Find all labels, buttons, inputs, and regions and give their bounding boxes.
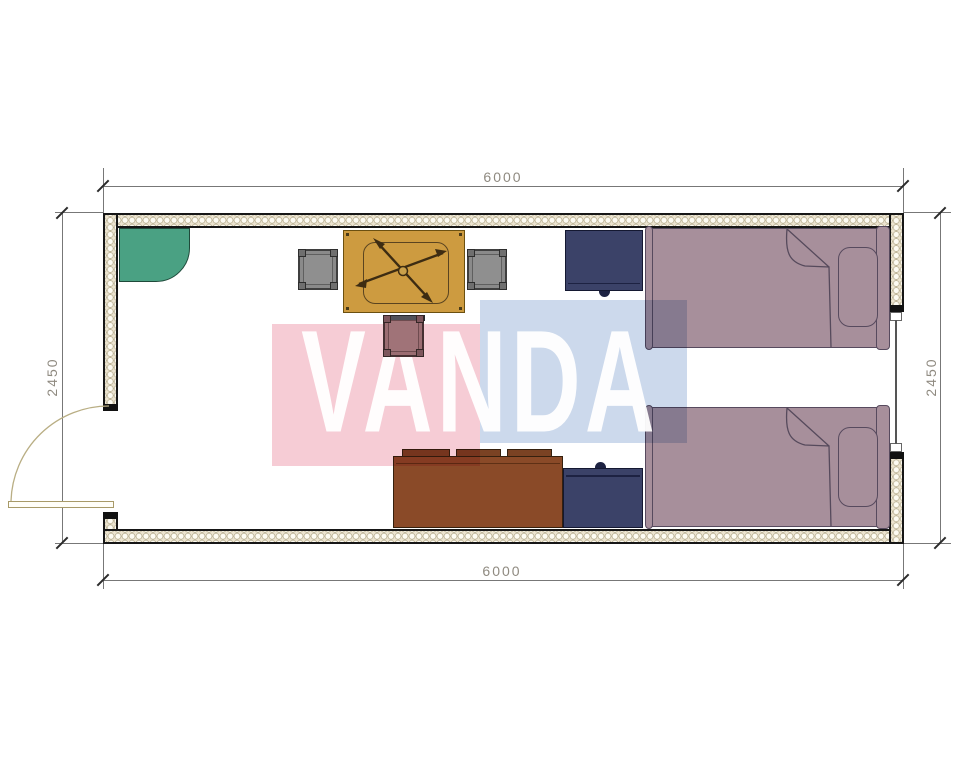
- chair-post: [383, 315, 391, 323]
- dim-ext-bottom-right: [903, 544, 904, 589]
- bed-upper-headboard: [876, 226, 890, 350]
- chair-seat: [388, 320, 419, 352]
- chair-post: [330, 249, 338, 257]
- wall-left-upper: [103, 213, 118, 410]
- chair-post: [467, 249, 475, 257]
- bed-upper-pillow: [838, 247, 878, 327]
- door-leaf: [8, 501, 114, 508]
- corner-shelf: [119, 228, 190, 282]
- wall-right-lower: [889, 452, 904, 544]
- bed-lower-headboard: [876, 405, 890, 529]
- window-glass-line: [895, 320, 897, 444]
- chair-post: [383, 349, 391, 357]
- dim-label-bottom: 6000: [447, 563, 557, 579]
- window-sill-bottom: [890, 443, 902, 452]
- chair-post: [416, 349, 424, 357]
- dim-label-right: 2450: [923, 337, 939, 417]
- chair-post: [416, 315, 424, 323]
- door-jamb-top: [103, 404, 118, 411]
- window-jamb-bottom: [889, 452, 904, 459]
- chair-post: [298, 249, 306, 257]
- dim-label-top: 6000: [448, 169, 558, 185]
- dim-label-left: 2450: [44, 337, 60, 417]
- floor-plan-canvas: 6000 6000 2450 2450: [0, 0, 960, 768]
- dim-line-top: [103, 186, 903, 187]
- window-jamb-top: [889, 305, 904, 312]
- dim-line-bottom: [103, 580, 903, 581]
- table-corner-dot: [346, 233, 349, 236]
- dim-line-left: [62, 213, 63, 543]
- door-jamb-bottom: [103, 512, 118, 519]
- chair-bottom: [383, 315, 424, 357]
- dim-ext-top-left: [103, 168, 104, 213]
- dim-ext-right-bottom: [903, 543, 951, 544]
- chair-post: [499, 249, 507, 257]
- wall-bottom: [103, 529, 903, 544]
- watermark-text: VANDA: [280, 277, 680, 487]
- wall-right-upper: [889, 213, 904, 312]
- table-corner-dot: [459, 233, 462, 236]
- door-swing-arc: [11, 406, 109, 501]
- dim-line-right: [940, 213, 941, 543]
- wall-top: [103, 213, 903, 228]
- dim-ext-bottom-left: [103, 544, 104, 589]
- dim-ext-top-right: [903, 168, 904, 213]
- bed-lower-pillow: [838, 427, 878, 507]
- dim-ext-right-top: [903, 212, 951, 213]
